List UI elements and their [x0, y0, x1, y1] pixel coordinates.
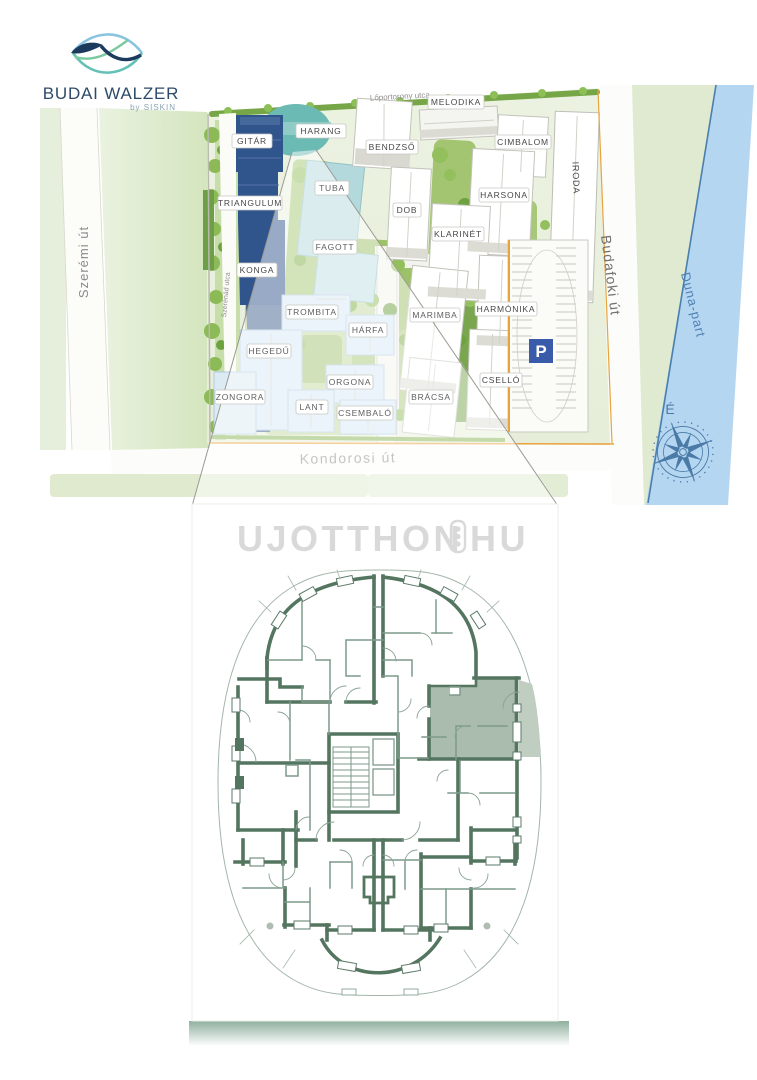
svg-text:HU: HU [470, 518, 529, 559]
svg-text:HÁRFA: HÁRFA [352, 325, 384, 335]
svg-text:TUBA: TUBA [319, 183, 345, 193]
svg-text:Szerémi út: Szerémi út [76, 226, 91, 298]
svg-text:HARANG: HARANG [300, 126, 341, 136]
svg-text:BENDZSŐ: BENDZSŐ [369, 142, 416, 152]
svg-text:CSEMBALÓ: CSEMBALÓ [338, 408, 392, 418]
svg-text:UJOTTHON: UJOTTHON [237, 518, 463, 559]
svg-text:KONGA: KONGA [240, 265, 275, 275]
svg-text:CIMBALOM: CIMBALOM [497, 137, 549, 147]
svg-text:ORGONA: ORGONA [329, 377, 372, 387]
svg-text:ZONGORA: ZONGORA [216, 392, 265, 402]
svg-text:LANT: LANT [300, 402, 325, 412]
svg-text:HARSONA: HARSONA [480, 190, 528, 200]
svg-text:by SISKIN: by SISKIN [130, 103, 176, 112]
svg-text:FAGOTT: FAGOTT [316, 242, 355, 252]
svg-text:CSELLÓ: CSELLÓ [482, 375, 520, 385]
svg-text:MELODIKA: MELODIKA [431, 97, 481, 107]
svg-text:TRIANGULUM: TRIANGULUM [218, 198, 282, 208]
svg-text:BRÁCSA: BRÁCSA [411, 392, 451, 402]
svg-text:HARMÓNIKA: HARMÓNIKA [477, 304, 536, 314]
svg-text:GITÁR: GITÁR [237, 136, 267, 146]
svg-text:HEGEDŰ: HEGEDŰ [248, 346, 289, 356]
svg-text:É: É [665, 401, 674, 417]
svg-text:KLARINÉT: KLARINÉT [434, 229, 482, 239]
svg-text:IRODA: IRODA [570, 161, 581, 194]
svg-text:TROMBITA: TROMBITA [287, 307, 337, 317]
svg-text:BUDAI WALZER: BUDAI WALZER [43, 84, 180, 103]
svg-text:DOB: DOB [397, 205, 418, 215]
svg-text:P: P [535, 342, 546, 361]
svg-text:MARIMBA: MARIMBA [412, 310, 457, 320]
